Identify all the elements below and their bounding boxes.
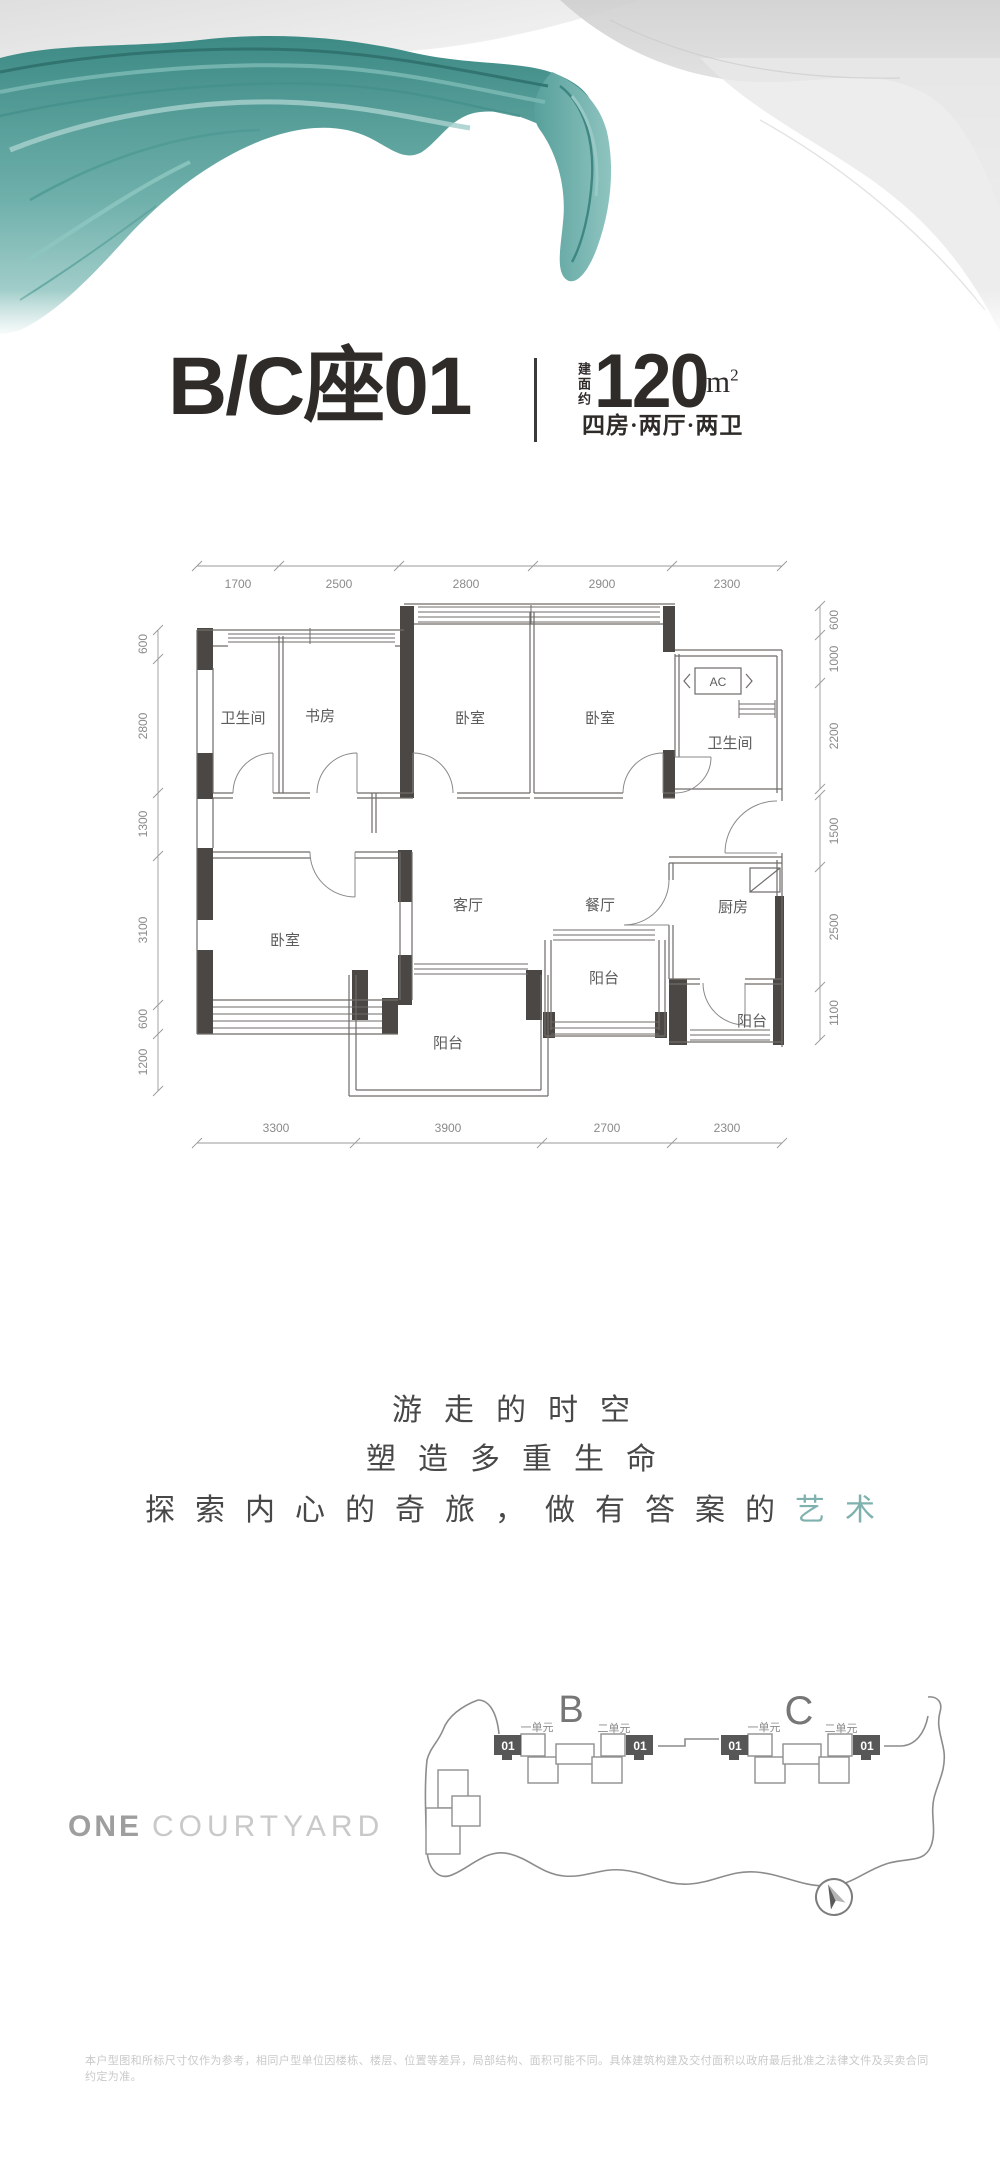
room-label-living: 客厅 [453, 897, 483, 914]
dim-top-3: 2800 [453, 577, 480, 591]
dim-right-5: 2500 [827, 913, 841, 940]
badge-b1: 01 [501, 1739, 515, 1753]
slogan-line-3-accent: 艺术 [795, 1494, 895, 1527]
dim-top-1: 1700 [225, 577, 252, 591]
unit-label-b2: 二单元 [598, 1722, 631, 1735]
site-plan: 01 01 一单元 二单元 B 01 01 一单元 二单元 C [408, 1680, 968, 1930]
slogan-line-3: 探索内心的奇旅，做有答案的艺术 [0, 1485, 1000, 1529]
building-b-letter: B [558, 1689, 583, 1731]
area-unit: m2 [706, 364, 739, 400]
unit-title: B/C座01 [168, 346, 470, 428]
slogan-line-2: 塑造多重生命 [0, 1434, 1000, 1478]
dim-right-2: 1000 [827, 645, 841, 672]
room-label-study: 书房 [305, 708, 335, 725]
site-building-c: 01 01 一单元 二单元 C [721, 1689, 880, 1783]
building-c-letter: C [785, 1689, 814, 1733]
dim-left-3: 1300 [136, 810, 150, 837]
layout-label: 四房·两厅·两卫 [582, 406, 743, 440]
dim-right-1: 600 [827, 610, 841, 630]
badge-b2: 01 [633, 1739, 647, 1753]
dim-left-2: 2800 [136, 712, 150, 739]
area-unit-m: m [706, 364, 730, 399]
brand-logo-one: ONE [68, 1810, 142, 1843]
dim-right-6: 1100 [827, 1000, 841, 1026]
title-divider [534, 358, 537, 442]
room-label-kitchen: 厨房 [718, 899, 748, 916]
room-label-dining: 餐厅 [585, 897, 615, 914]
room-label-bedroom3: 卧室 [270, 932, 300, 949]
building-b-blocks [521, 1734, 625, 1783]
brand-logo-courtyard: COURTYARD [152, 1810, 384, 1843]
unit-label-b1: 一单元 [521, 1721, 554, 1734]
dim-top-2: 2500 [326, 577, 353, 591]
hero-art [0, 0, 1000, 340]
unit-label-c2: 二单元 [825, 1722, 858, 1735]
dim-left-4: 3100 [136, 916, 150, 943]
teal-paint-hook [534, 72, 611, 281]
badge-c1: 01 [728, 1739, 742, 1753]
badge-c2: 01 [860, 1739, 874, 1753]
dim-bottom-4: 2300 [714, 1121, 741, 1135]
dim-bottom-2: 3900 [435, 1121, 462, 1135]
dim-right-3: 2200 [827, 722, 841, 749]
dim-top-5: 2300 [714, 577, 741, 591]
disclaimer-text: 本户型图和所标尺寸仅作为参考，相同户型单位因楼栋、楼层、位置等差异，局部结构、面… [85, 2052, 930, 2084]
room-label-bedroom2: 卧室 [585, 710, 615, 727]
room-label-balcony3: 阳台 [737, 1013, 767, 1030]
ac-unit-label: AC [710, 675, 727, 689]
dim-top-4: 2900 [589, 577, 616, 591]
area-unit-sup: 2 [730, 366, 739, 385]
teal-paint-main [0, 36, 593, 334]
dim-bottom-3: 2700 [594, 1121, 621, 1135]
room-label-balcony2: 阳台 [433, 1035, 463, 1052]
dim-left-1: 600 [136, 634, 150, 654]
floorplan: 1700 2500 2800 2900 2300 3300 3900 2700 … [120, 540, 880, 1160]
room-label-bedroom1: 卧室 [455, 710, 485, 727]
dim-bottom-1: 3300 [263, 1121, 290, 1135]
room-label-balcony1: 阳台 [589, 970, 619, 987]
slogan-line-1: 游走的时空 [0, 1385, 1000, 1429]
brand-logo: ONECOURTYARD [68, 1812, 384, 1842]
art-fade [0, 290, 1000, 340]
windows [213, 605, 775, 1040]
unit-label-c1: 一单元 [748, 1721, 781, 1734]
slogan-line-3-prefix: 探索内心的奇旅，做有答案的 [145, 1494, 795, 1527]
building-c-blocks [748, 1734, 852, 1783]
room-label-bath2: 卫生间 [707, 735, 752, 752]
site-building-b: 01 01 一单元 二单元 B [494, 1689, 653, 1783]
dim-left-5: 600 [136, 1009, 150, 1029]
area-prefix: 建面约 [574, 362, 590, 407]
walls [197, 604, 782, 1096]
site-boundary [425, 1697, 944, 1886]
dimension-lines [153, 561, 825, 1148]
dim-left-6: 1200 [136, 1048, 150, 1075]
dim-right-4: 1500 [827, 817, 841, 844]
room-label-bath1: 卫生间 [220, 710, 265, 727]
site-building-left [426, 1770, 480, 1854]
poster-page: B/C座01 建面约 120 m2 四房·两厅·两卫 [0, 0, 1000, 2166]
dimension-labels: 1700 2500 2800 2900 2300 3300 3900 2700 … [136, 577, 841, 1135]
